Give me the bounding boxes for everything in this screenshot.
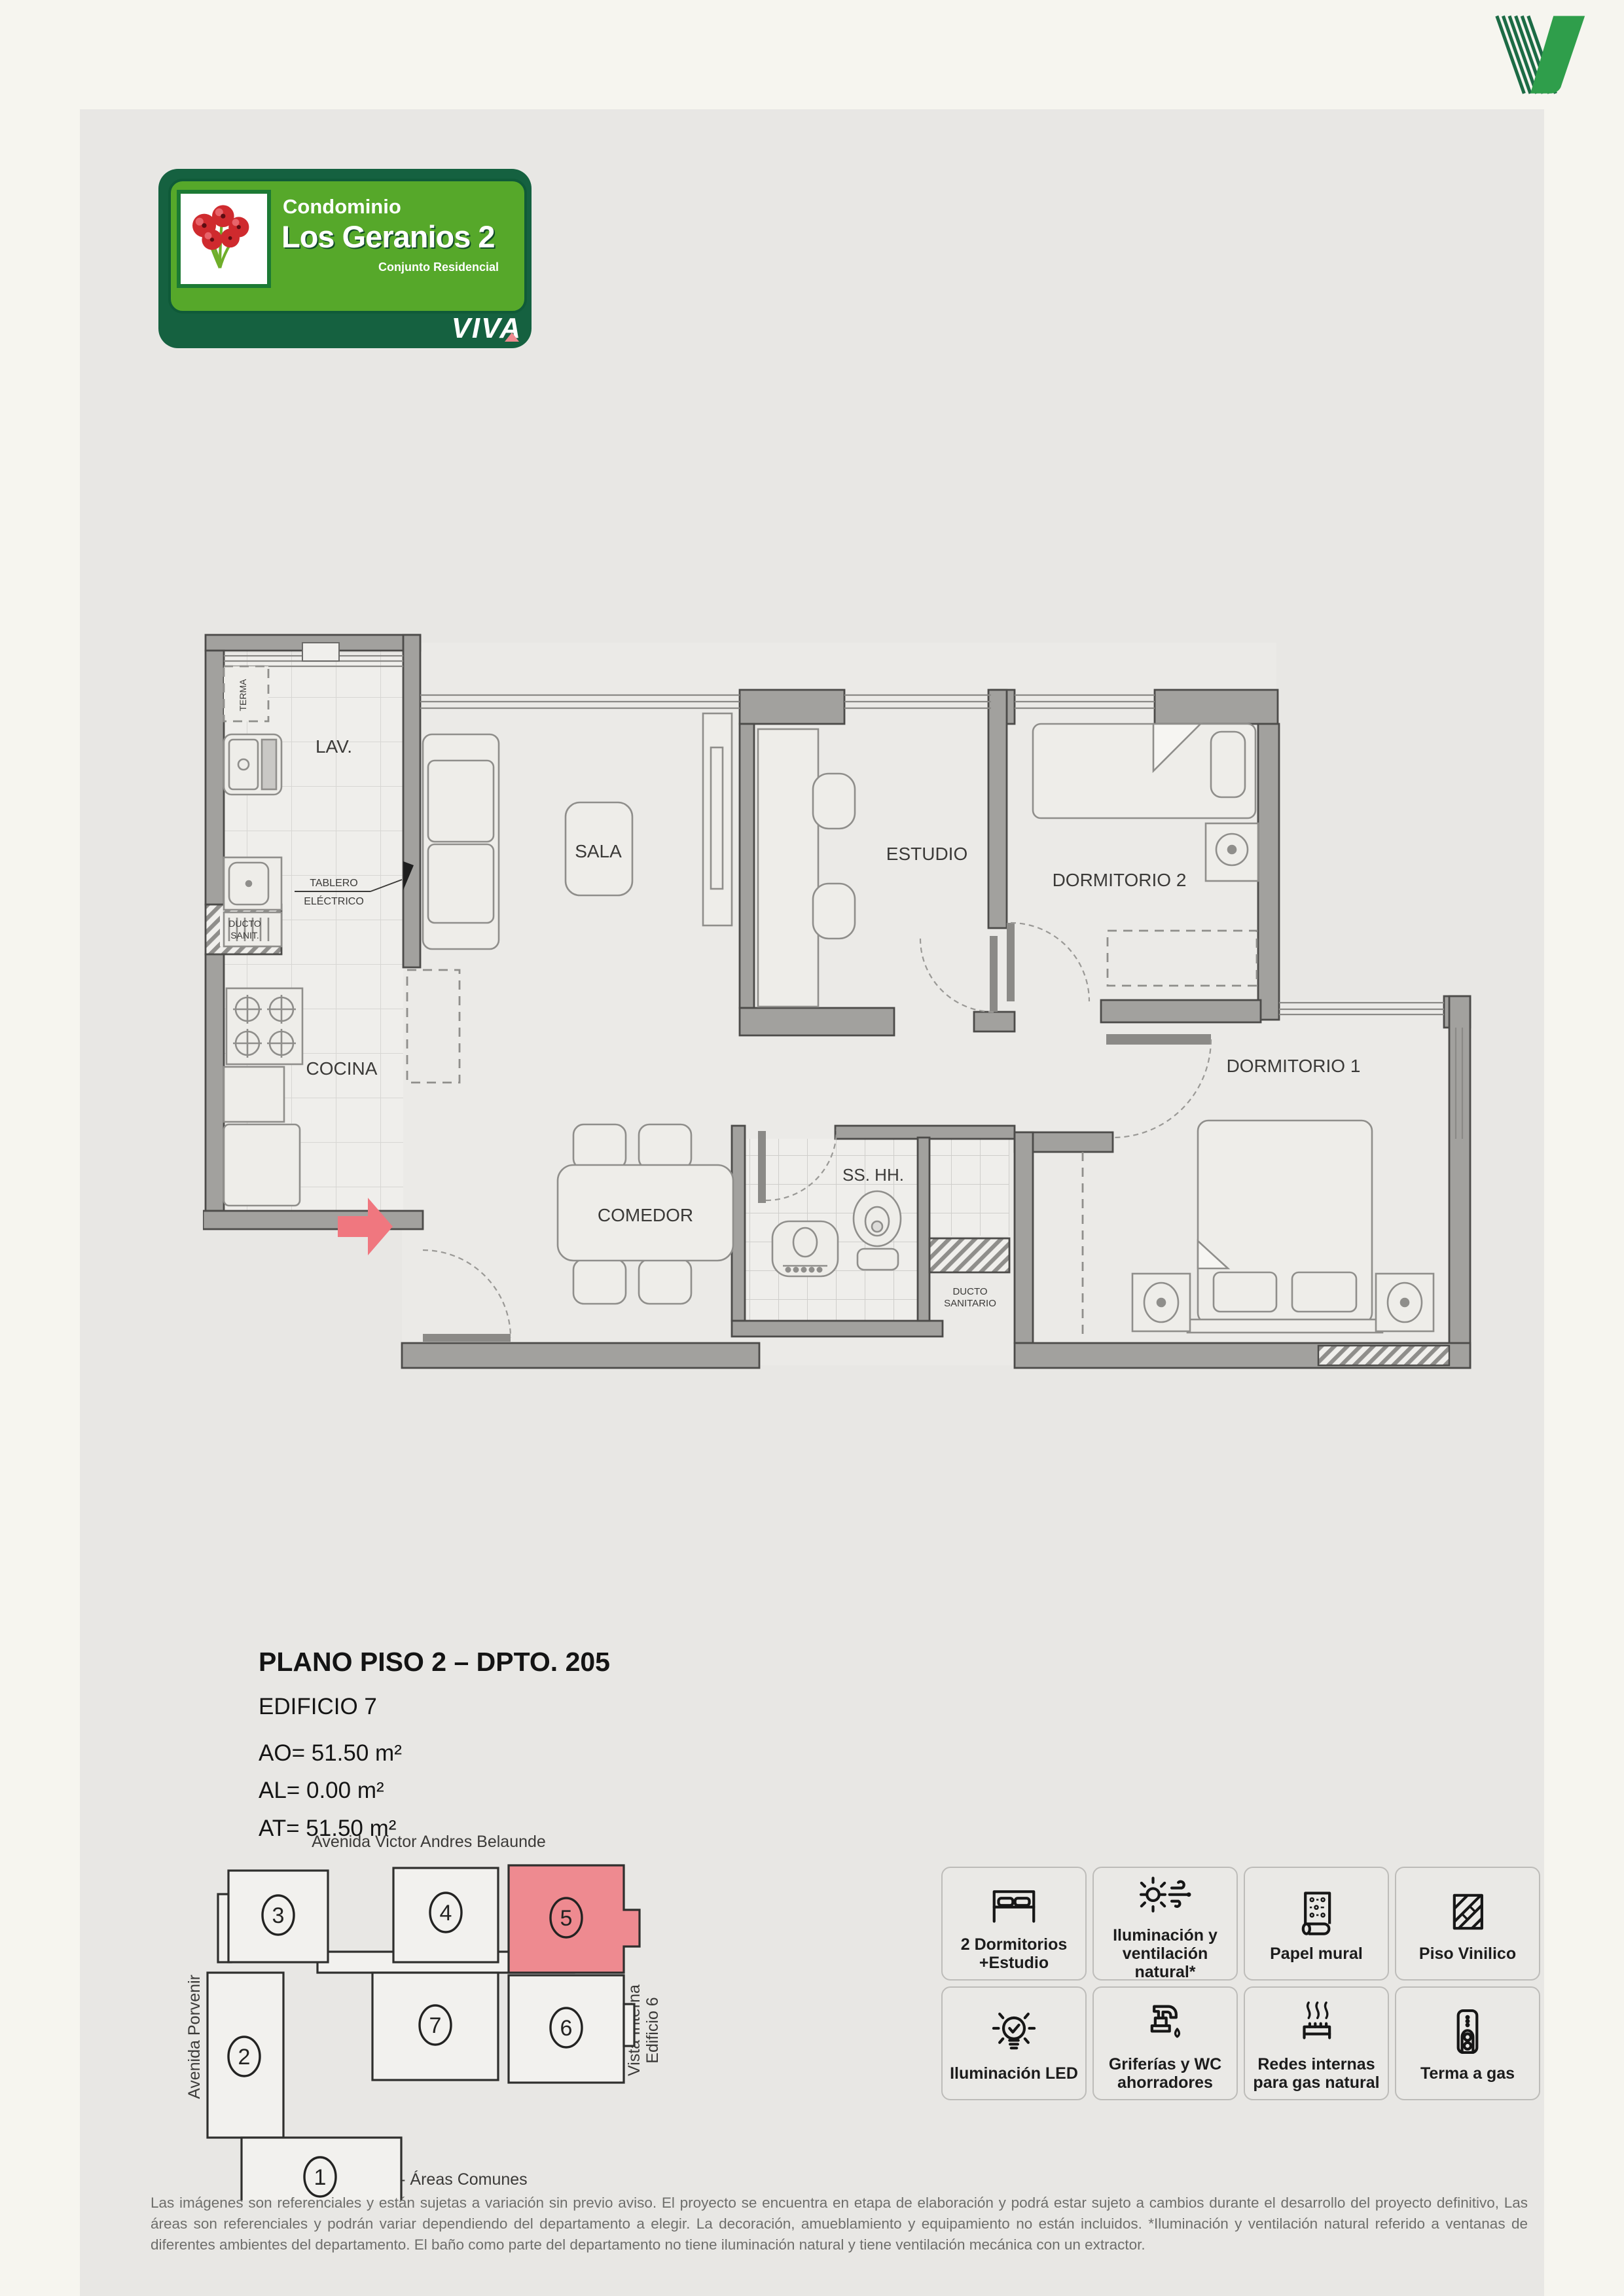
feature-grid: 2 Dormitorios +Estudio Iluminación y ven…: [941, 1867, 1540, 2100]
badge-project-name: Los Geranios 2: [281, 219, 509, 255]
feature-label: Iluminación y ventilación natural*: [1096, 1926, 1234, 1981]
label-comedor: COMEDOR: [598, 1205, 693, 1225]
label-ducto-sanitario-1: DUCTO: [952, 1286, 987, 1297]
feature-card-gas: Redes internas para gas natural: [1244, 1986, 1389, 2100]
badge-subtitle: Conjunto Residencial: [283, 260, 499, 274]
wallpaper-icon: [1289, 1884, 1344, 1939]
floorplan: LAV. SALA ESTUDIO DORMITORIO 2 DORMITORI…: [203, 609, 1481, 1373]
duct-floor-tiles: [929, 1139, 1009, 1236]
label-cocina: COCINA: [306, 1058, 378, 1079]
building-7-number: 7: [429, 2013, 442, 2038]
building-6-number: 6: [560, 2016, 573, 2041]
feature-label: 2 Dormitorios +Estudio: [961, 1935, 1068, 1972]
label-ducto-sanitario-2: SANITARIO: [944, 1298, 996, 1309]
viva-v-logo-icon: [1485, 12, 1597, 96]
label-terma: TERMA: [238, 679, 248, 711]
label-tablero-2: ELÉCTRICO: [304, 895, 364, 907]
led-bulb-icon: [986, 2004, 1041, 2059]
faucet-icon: [1138, 1995, 1193, 2050]
disclaimer-text: Las imágenes son referenciales y están s…: [151, 2193, 1528, 2255]
vinyl-floor-icon: [1440, 1884, 1495, 1939]
feature-label: Terma a gas: [1420, 2064, 1515, 2083]
label-dormitorio2: DORMITORIO 2: [1053, 870, 1187, 890]
label-estudio: ESTUDIO: [886, 844, 967, 864]
label-tablero-1: TABLERO: [310, 878, 358, 889]
feature-card-wallpaper: Papel mural: [1244, 1867, 1389, 1981]
feature-card-vinyl: Piso Vinilico: [1395, 1867, 1540, 1981]
feature-card-led: Iluminación LED: [941, 1986, 1087, 2100]
feature-label: Iluminación LED: [950, 2064, 1078, 2083]
street-left-label: Avenida Porvenir: [185, 1975, 204, 2099]
feature-card-bedrooms: 2 Dormitorios +Estudio: [941, 1867, 1087, 1981]
label-sala: SALA: [575, 841, 622, 861]
feature-card-heater: Terma a gas: [1395, 1986, 1540, 2100]
feature-label: Papel mural: [1270, 1945, 1363, 1963]
title-block: PLANO PISO 2 – DPTO. 205 EDIFICIO 7 AO= …: [259, 1647, 610, 1847]
building-3-number: 3: [272, 1903, 285, 1928]
bottom-hatch: [1318, 1346, 1449, 1365]
bed-icon: [986, 1875, 1041, 1930]
heater-icon: [1440, 2004, 1495, 2059]
building-label: EDIFICIO 7: [259, 1694, 610, 1720]
label-ducto-sanit-2: SANIT.: [230, 930, 259, 941]
plan-title: PLANO PISO 2 – DPTO. 205: [259, 1647, 610, 1677]
badge-condominio-label: Condominio: [283, 195, 499, 219]
viva-triangle-icon: [505, 332, 519, 342]
geranium-flowers-icon: [177, 190, 271, 288]
feature-label: Redes internas para gas natural: [1253, 2055, 1379, 2092]
building-4-number: 4: [440, 1901, 452, 1926]
badge-viva-logo: VIVA: [397, 314, 522, 343]
building-2-number: 2: [238, 2045, 251, 2070]
project-badge: Condominio Los Geranios 2 Conjunto Resid…: [158, 169, 532, 348]
site-plan: Avenida Victor Andres Belaunde Avenida P…: [160, 1821, 684, 2200]
window-marker: [302, 643, 339, 661]
gas-icon: [1289, 1995, 1344, 2050]
building-5-highlighted: [509, 1865, 640, 1973]
building-1-number: 1: [314, 2165, 327, 2190]
label-ducto-sanit-1: DUCTO: [228, 918, 261, 929]
vista-interna-label-2: Edificio 6: [643, 1997, 662, 2063]
area-al: AL= 0.00 m²: [259, 1772, 610, 1809]
label-bath: SS. HH.: [842, 1165, 904, 1185]
duct-sanitario-hatch: [929, 1238, 1009, 1272]
flyer-page: Condominio Los Geranios 2 Conjunto Resid…: [0, 0, 1624, 2296]
street-top-label: Avenida Victor Andres Belaunde: [312, 1833, 546, 1851]
building-5-number: 5: [560, 1906, 573, 1931]
label-lav: LAV.: [316, 736, 352, 757]
feature-card-natural-light: Iluminación y ventilación natural*: [1092, 1867, 1238, 1981]
sun-wind-icon: [1138, 1866, 1193, 1921]
label-dormitorio1: DORMITORIO 1: [1227, 1056, 1361, 1076]
area-ao: AO= 51.50 m²: [259, 1734, 610, 1772]
feature-label: Griferías y WC ahorradores: [1109, 2055, 1221, 2092]
feature-card-faucet: Griferías y WC ahorradores: [1092, 1986, 1238, 2100]
feature-label: Piso Vinilico: [1419, 1945, 1516, 1963]
